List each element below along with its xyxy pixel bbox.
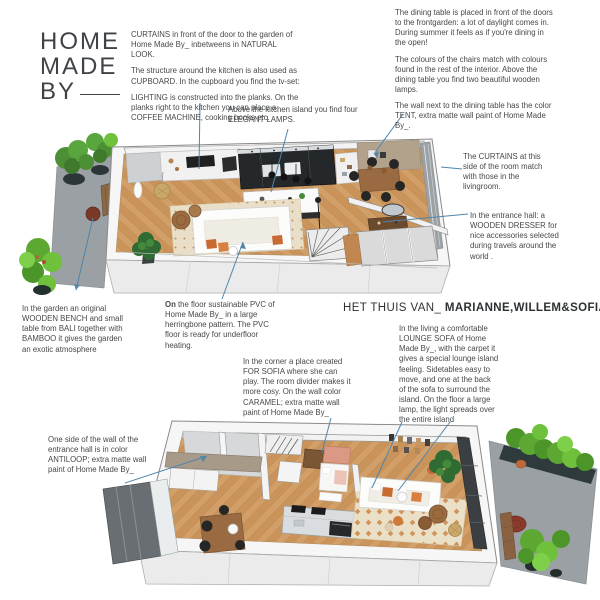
plan1-fridge-wall (126, 152, 162, 183)
arrowhead-garden (74, 284, 80, 290)
plan1-garden (19, 133, 118, 295)
plan1-tall-vase-icon (134, 182, 142, 198)
plan1-building (106, 139, 450, 293)
logo-underscore (80, 94, 120, 95)
note-sofa: In the living a comfortable LOUNGE SOFA … (399, 324, 499, 425)
plan2-pouf (385, 523, 393, 531)
brand-logo: HOME MADE BY (40, 30, 120, 105)
plan2-terracotta-pot-icon (516, 460, 526, 468)
plan2-basket-lamp-icon (449, 524, 462, 537)
note-cupboard: The structure around the kitchen is also… (131, 66, 301, 86)
plan2-lounge-sofa (359, 477, 441, 513)
note-dresser: In the entrance hall: a WOODEN DRESSER f… (470, 211, 560, 262)
plan2-floor-cushion (393, 516, 403, 526)
plan1-ball-lamp-icon (229, 247, 238, 256)
note-tent: The wall next to the dining table has th… (395, 101, 553, 131)
note-curtains-side: The CURTAINS at this side of the room ma… (463, 152, 551, 193)
logo-line-3: BY (40, 80, 120, 105)
note-block-dining: The dining table is placed in front of t… (395, 8, 553, 137)
title-prefix: HET THUIS VAN_ (343, 302, 441, 314)
note-garden: In the garden an original WOODEN BENCH a… (22, 304, 130, 355)
note-antiloop: One side of the wall of the entrance hal… (48, 435, 148, 476)
plan1-front-wall (106, 260, 450, 293)
note-dining: The dining table is placed in front of t… (395, 8, 553, 49)
plan2-garden (489, 424, 597, 584)
note-curtains: CURTAINS in front of the door to the gar… (131, 30, 301, 60)
plan1-kitchen-counter (160, 149, 242, 181)
plan2-hall-door (277, 461, 302, 483)
plan2-building (103, 421, 497, 586)
note-chairs: The colours of the chairs match with col… (395, 55, 553, 96)
presentation-page: { "logo": { "line1": "HOME", "line2": "M… (0, 0, 600, 600)
plan2-stair-railing (265, 434, 303, 455)
logo-line-1: HOME (40, 30, 120, 55)
plan1-bathroom-rooms (343, 226, 438, 266)
note-floor-rest: the floor sustainable PVC of Home Made B… (165, 300, 275, 350)
plan1-cupboard-tv-unit (238, 145, 336, 189)
logo-line-2: MADE (40, 55, 120, 80)
note-lamps: Above the kitchen island you find four E… (228, 105, 362, 125)
page-title: HET THUIS VAN_ MARIANNE,WILLEM&SOFIA (343, 302, 600, 314)
plan2-left-closet-wall (103, 479, 178, 564)
note-sofia: In the corner a place created FOR SOFIA … (243, 357, 353, 418)
leader-curtains-side (441, 167, 462, 169)
title-names: MARIANNE,WILLEM&SOFIA (445, 302, 600, 314)
plan1-tent-wall (357, 140, 421, 172)
note-floor: On the floor sustainable PVC of Home Mad… (165, 300, 279, 351)
note-floor-bold: On (165, 300, 176, 309)
